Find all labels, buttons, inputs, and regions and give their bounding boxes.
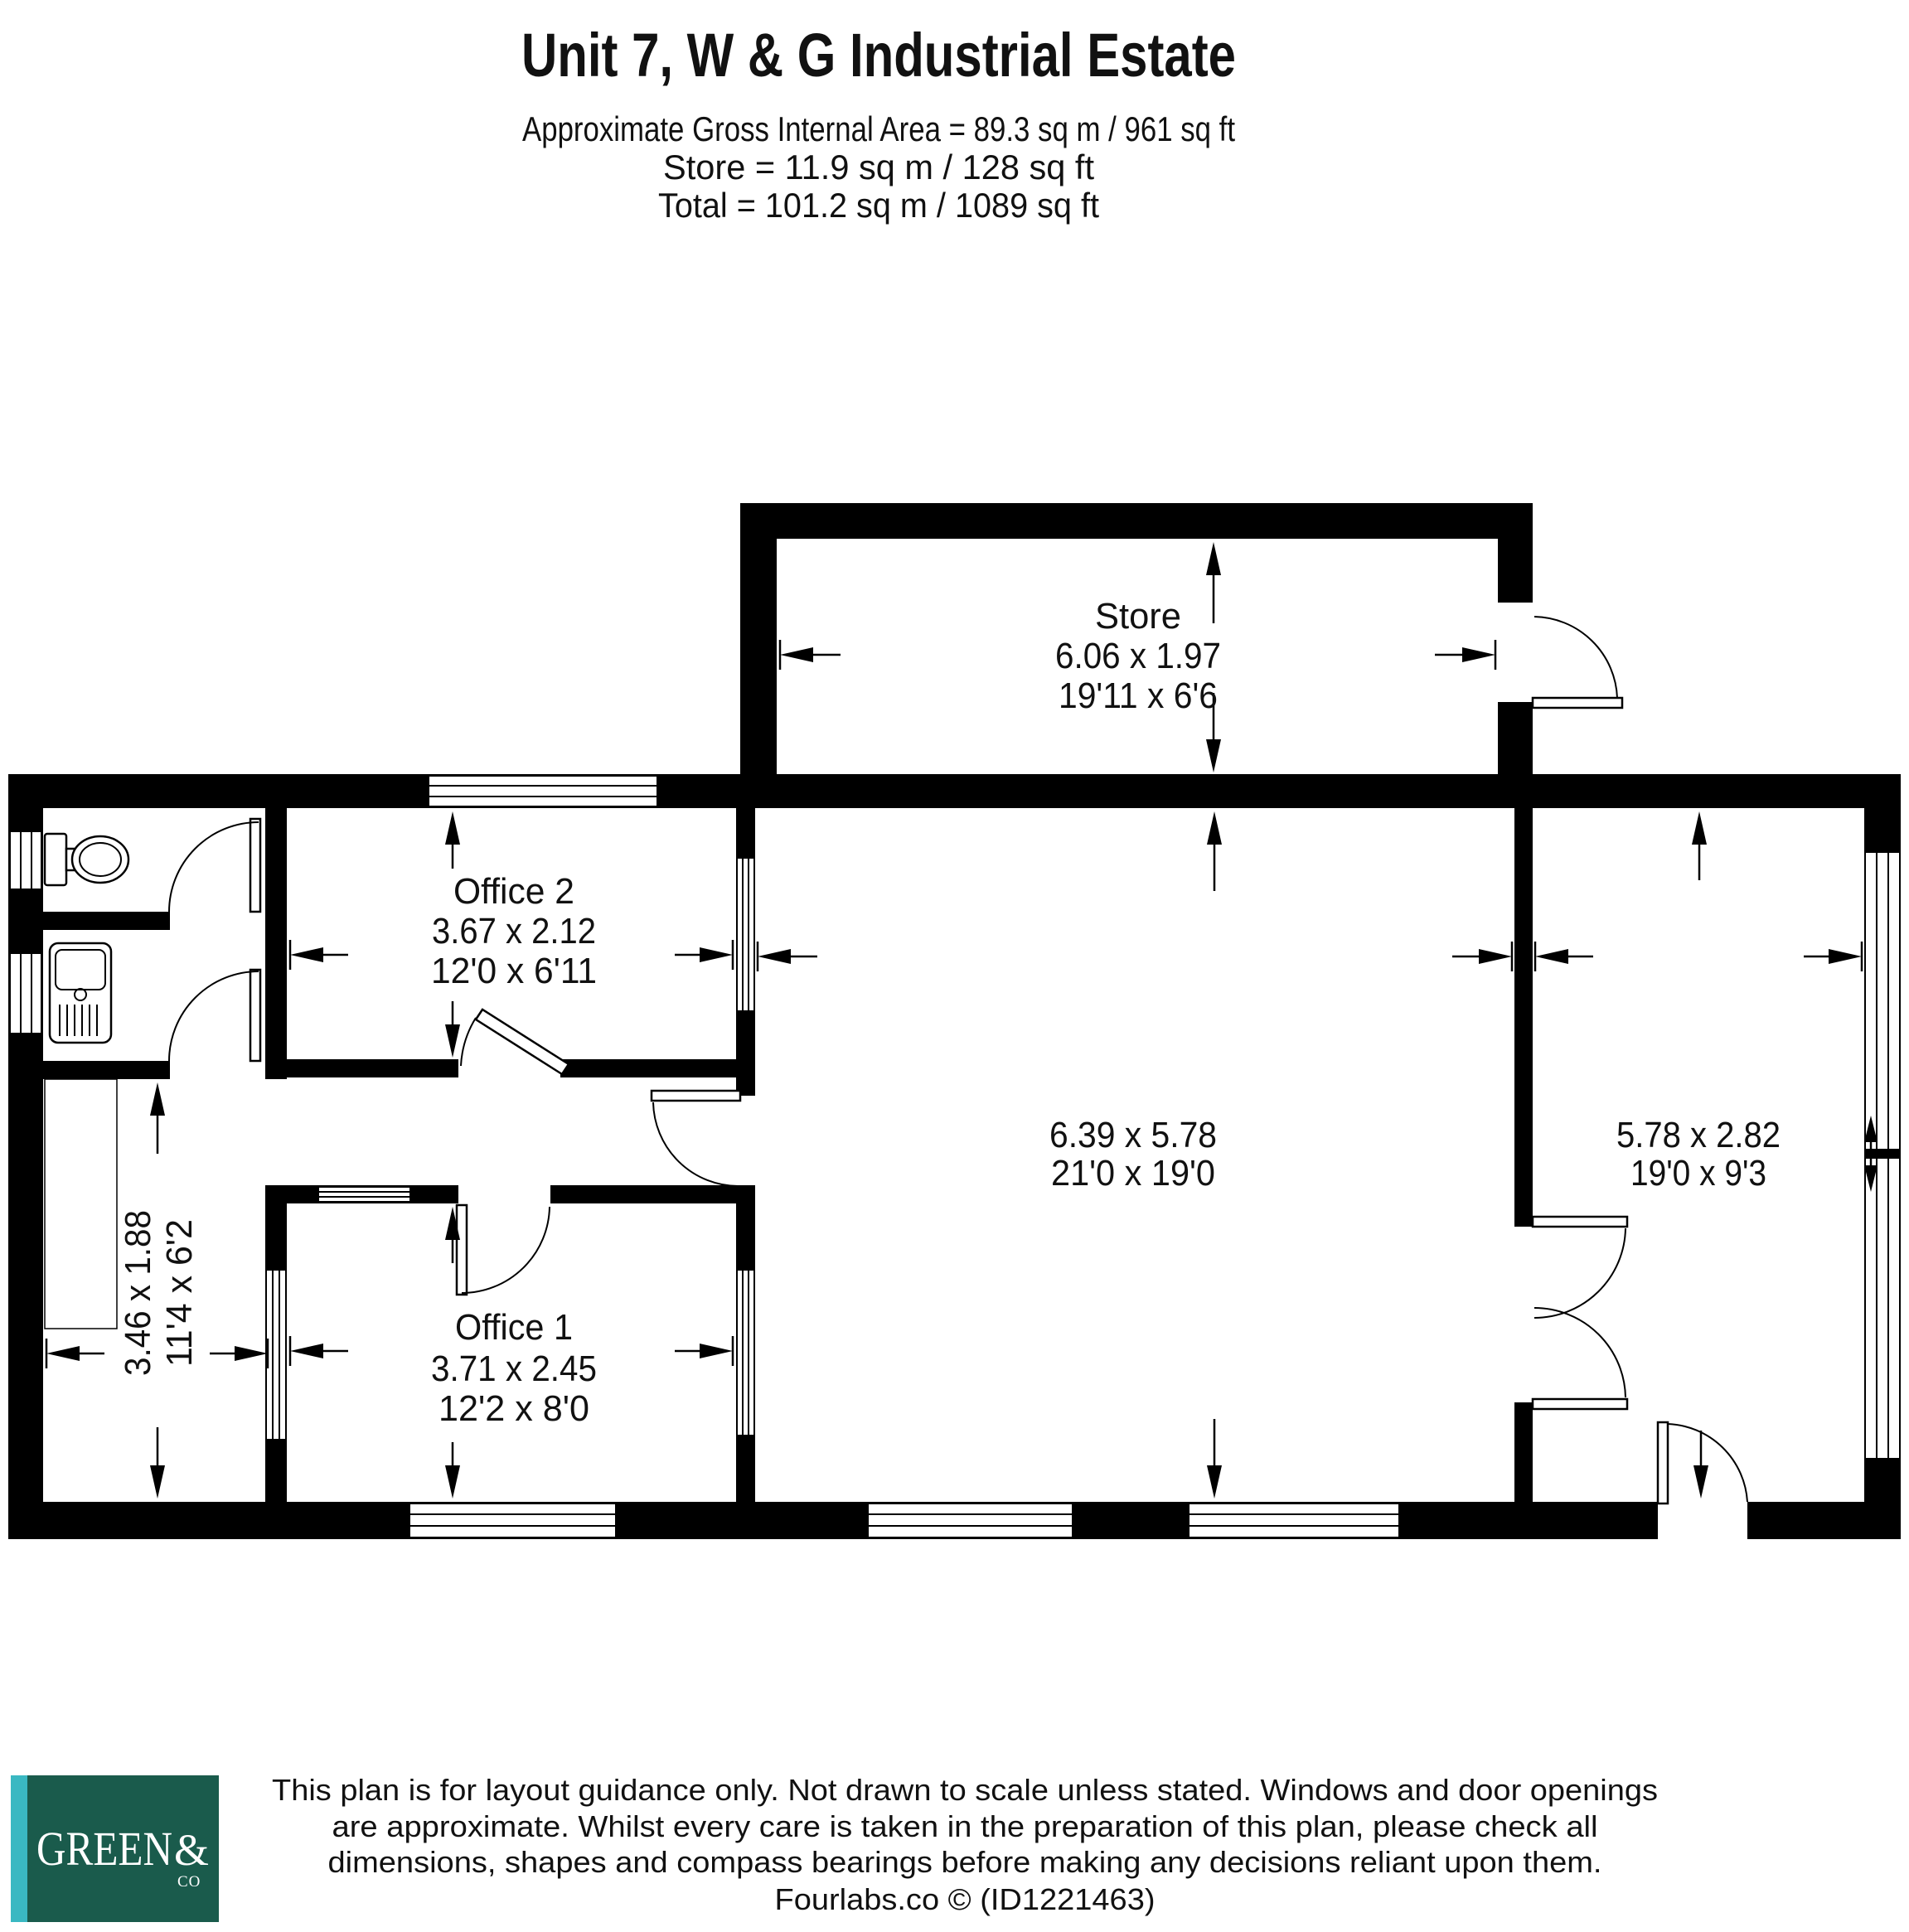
store-west-wall — [740, 503, 777, 774]
store-label: Store — [1095, 596, 1181, 637]
office1-north-wall-right — [550, 1185, 755, 1203]
hallway-door — [652, 1091, 740, 1186]
corridor-dim-down — [150, 1427, 165, 1499]
corridor-dim-metric: 3.46 x 1.88 — [118, 1210, 158, 1376]
floor-plan-canvas: Unit 7, W & G Industrial Estate Approxim… — [0, 0, 1909, 1932]
windows — [10, 776, 1900, 1537]
office1-dim-imperial: 12'2 x 8'0 — [438, 1388, 589, 1429]
header: Unit 7, W & G Industrial Estate Approxim… — [521, 21, 1236, 225]
corridor-east-partition-lower — [265, 1440, 287, 1502]
warehouse-dim-up — [1207, 811, 1222, 891]
entrance-door — [1658, 1422, 1747, 1503]
office2-dim-up — [445, 811, 460, 869]
double-door-upper — [1533, 1217, 1627, 1318]
credit-line: Fourlabs.co © (ID1221463) — [775, 1882, 1156, 1916]
wc-south-wall — [43, 912, 170, 930]
logo-text-ampersand: & — [174, 1825, 209, 1875]
wc-door — [169, 819, 260, 912]
corridor-dim-right — [210, 1339, 268, 1368]
office2-south-wall-right — [560, 1059, 736, 1077]
reception-west-partition-upper — [1514, 808, 1533, 1227]
fixtures — [45, 834, 128, 1329]
office1-dim-right — [675, 1336, 733, 1366]
gross-internal-area-line: Approximate Gross Internal Area = 89.3 s… — [522, 109, 1235, 148]
warehouse-dim-metric: 6.39 x 5.78 — [1049, 1115, 1217, 1155]
office1-dim-metric: 3.71 x 2.45 — [431, 1349, 597, 1389]
logo-text-green: GREEN — [36, 1822, 172, 1876]
warehouse-dim-imperial: 21'0 x 19'0 — [1051, 1153, 1215, 1194]
store-dim-left — [780, 640, 841, 670]
office2-dim-down — [445, 1001, 460, 1058]
disclaimer-line-1: This plan is for layout guidance only. N… — [272, 1773, 1658, 1807]
office1-dim-down — [445, 1442, 460, 1499]
sink-room-window — [10, 953, 41, 1034]
sink-room-door — [169, 970, 260, 1061]
corridor-dim-left — [46, 1339, 104, 1368]
office1-west-window — [266, 1270, 286, 1440]
south-window-3 — [1189, 1503, 1399, 1537]
entrance-door-opening — [1658, 1502, 1747, 1539]
footer: GREEN & CO This plan is for layout guida… — [11, 1773, 1658, 1922]
logo-text-co: CO — [177, 1873, 201, 1891]
sink-icon — [50, 943, 111, 1043]
corridor-dim-imperial: 11'4 x 6'2 — [159, 1219, 200, 1367]
office2-north-window — [429, 776, 657, 806]
office1-door — [457, 1205, 550, 1295]
store-dim-up — [1206, 542, 1221, 623]
dimension-arrows — [46, 542, 1878, 1499]
office1-north-window — [318, 1187, 410, 1202]
warehouse-dim-down — [1207, 1419, 1222, 1499]
reception-dim-right — [1804, 942, 1862, 971]
office2-label: Office 2 — [453, 871, 574, 912]
office2-south-wall-left — [287, 1059, 458, 1077]
office2-dim-left — [290, 940, 348, 970]
office2-dim-right — [675, 940, 733, 970]
logo-stripe — [11, 1775, 27, 1922]
office2-east-window — [737, 858, 754, 1011]
south-window-2 — [868, 1503, 1073, 1537]
green-co-logo: GREEN & CO — [11, 1775, 219, 1922]
wc-window — [10, 831, 41, 889]
store-door-opening — [1498, 603, 1533, 702]
corridor-dim-up — [150, 1082, 165, 1154]
store-dim-metric: 6.06 x 1.97 — [1055, 636, 1221, 676]
floorplan-page: Unit 7, W & G Industrial Estate Approxim… — [0, 0, 1909, 1932]
main-north-wall — [8, 774, 1901, 808]
reception-dim-up — [1692, 811, 1707, 880]
reception-dim-metric: 5.78 x 2.82 — [1616, 1115, 1781, 1155]
store-north-wall — [740, 503, 1533, 539]
reception-dim-imperial: 19'0 x 9'3 — [1630, 1153, 1766, 1194]
total-area-line: Total = 101.2 sq m / 1089 sq ft — [658, 186, 1099, 225]
office1-east-window — [737, 1270, 754, 1436]
reception-dim-left — [1535, 942, 1593, 971]
double-door-lower — [1533, 1308, 1627, 1409]
store-dim-imperial: 19'11 x 6'6 — [1059, 675, 1218, 716]
reception-dim-down — [1693, 1431, 1708, 1499]
reception-west-partition-lower — [1514, 1402, 1533, 1502]
disclaimer-line-3: dimensions, shapes and compass bearings … — [328, 1845, 1602, 1879]
office2-dim-metric: 3.67 x 2.12 — [432, 911, 596, 951]
warehouse-dim-right — [1452, 942, 1512, 971]
office2-dim-imperial: 12'0 x 6'11 — [431, 951, 597, 991]
corridor-east-partition-upper — [265, 808, 287, 1079]
worktop-counter — [45, 1079, 117, 1329]
office1-dim-left — [290, 1336, 348, 1366]
page-title: Unit 7, W & G Industrial Estate — [521, 21, 1236, 90]
south-window-1 — [409, 1503, 616, 1537]
office2-door — [461, 1010, 569, 1074]
disclaimer-line-2: are approximate. Whilst every care is ta… — [332, 1809, 1598, 1843]
office1-label: Office 1 — [455, 1307, 573, 1348]
toilet-icon — [45, 834, 128, 885]
warehouse-dim-left — [758, 942, 817, 971]
exterior-walls — [8, 503, 1901, 1539]
store-dim-right — [1435, 640, 1495, 670]
store-door — [1533, 617, 1622, 708]
sink-room-south-wall — [43, 1061, 170, 1079]
store-area-line: Store = 11.9 sq m / 128 sq ft — [663, 148, 1094, 186]
